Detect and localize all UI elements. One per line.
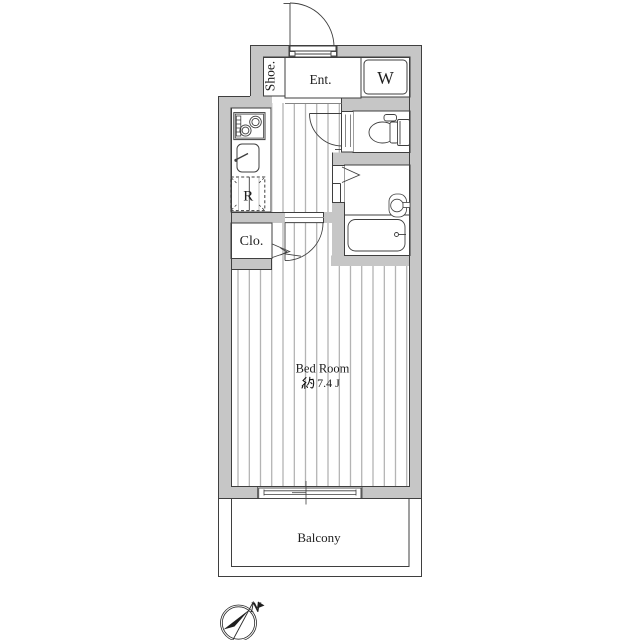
svg-text:W: W [377, 68, 394, 88]
svg-text:Balcony: Balcony [297, 530, 341, 545]
svg-text:Bed Room: Bed Room [296, 362, 350, 376]
svg-text:Ent.: Ent. [309, 72, 331, 87]
svg-text:7.4 J: 7.4 J [317, 376, 340, 390]
svg-text:Clo.: Clo. [240, 234, 264, 249]
svg-text:R: R [243, 189, 253, 205]
svg-text:Shoe.: Shoe. [263, 61, 278, 91]
svg-text:N: N [249, 600, 262, 616]
